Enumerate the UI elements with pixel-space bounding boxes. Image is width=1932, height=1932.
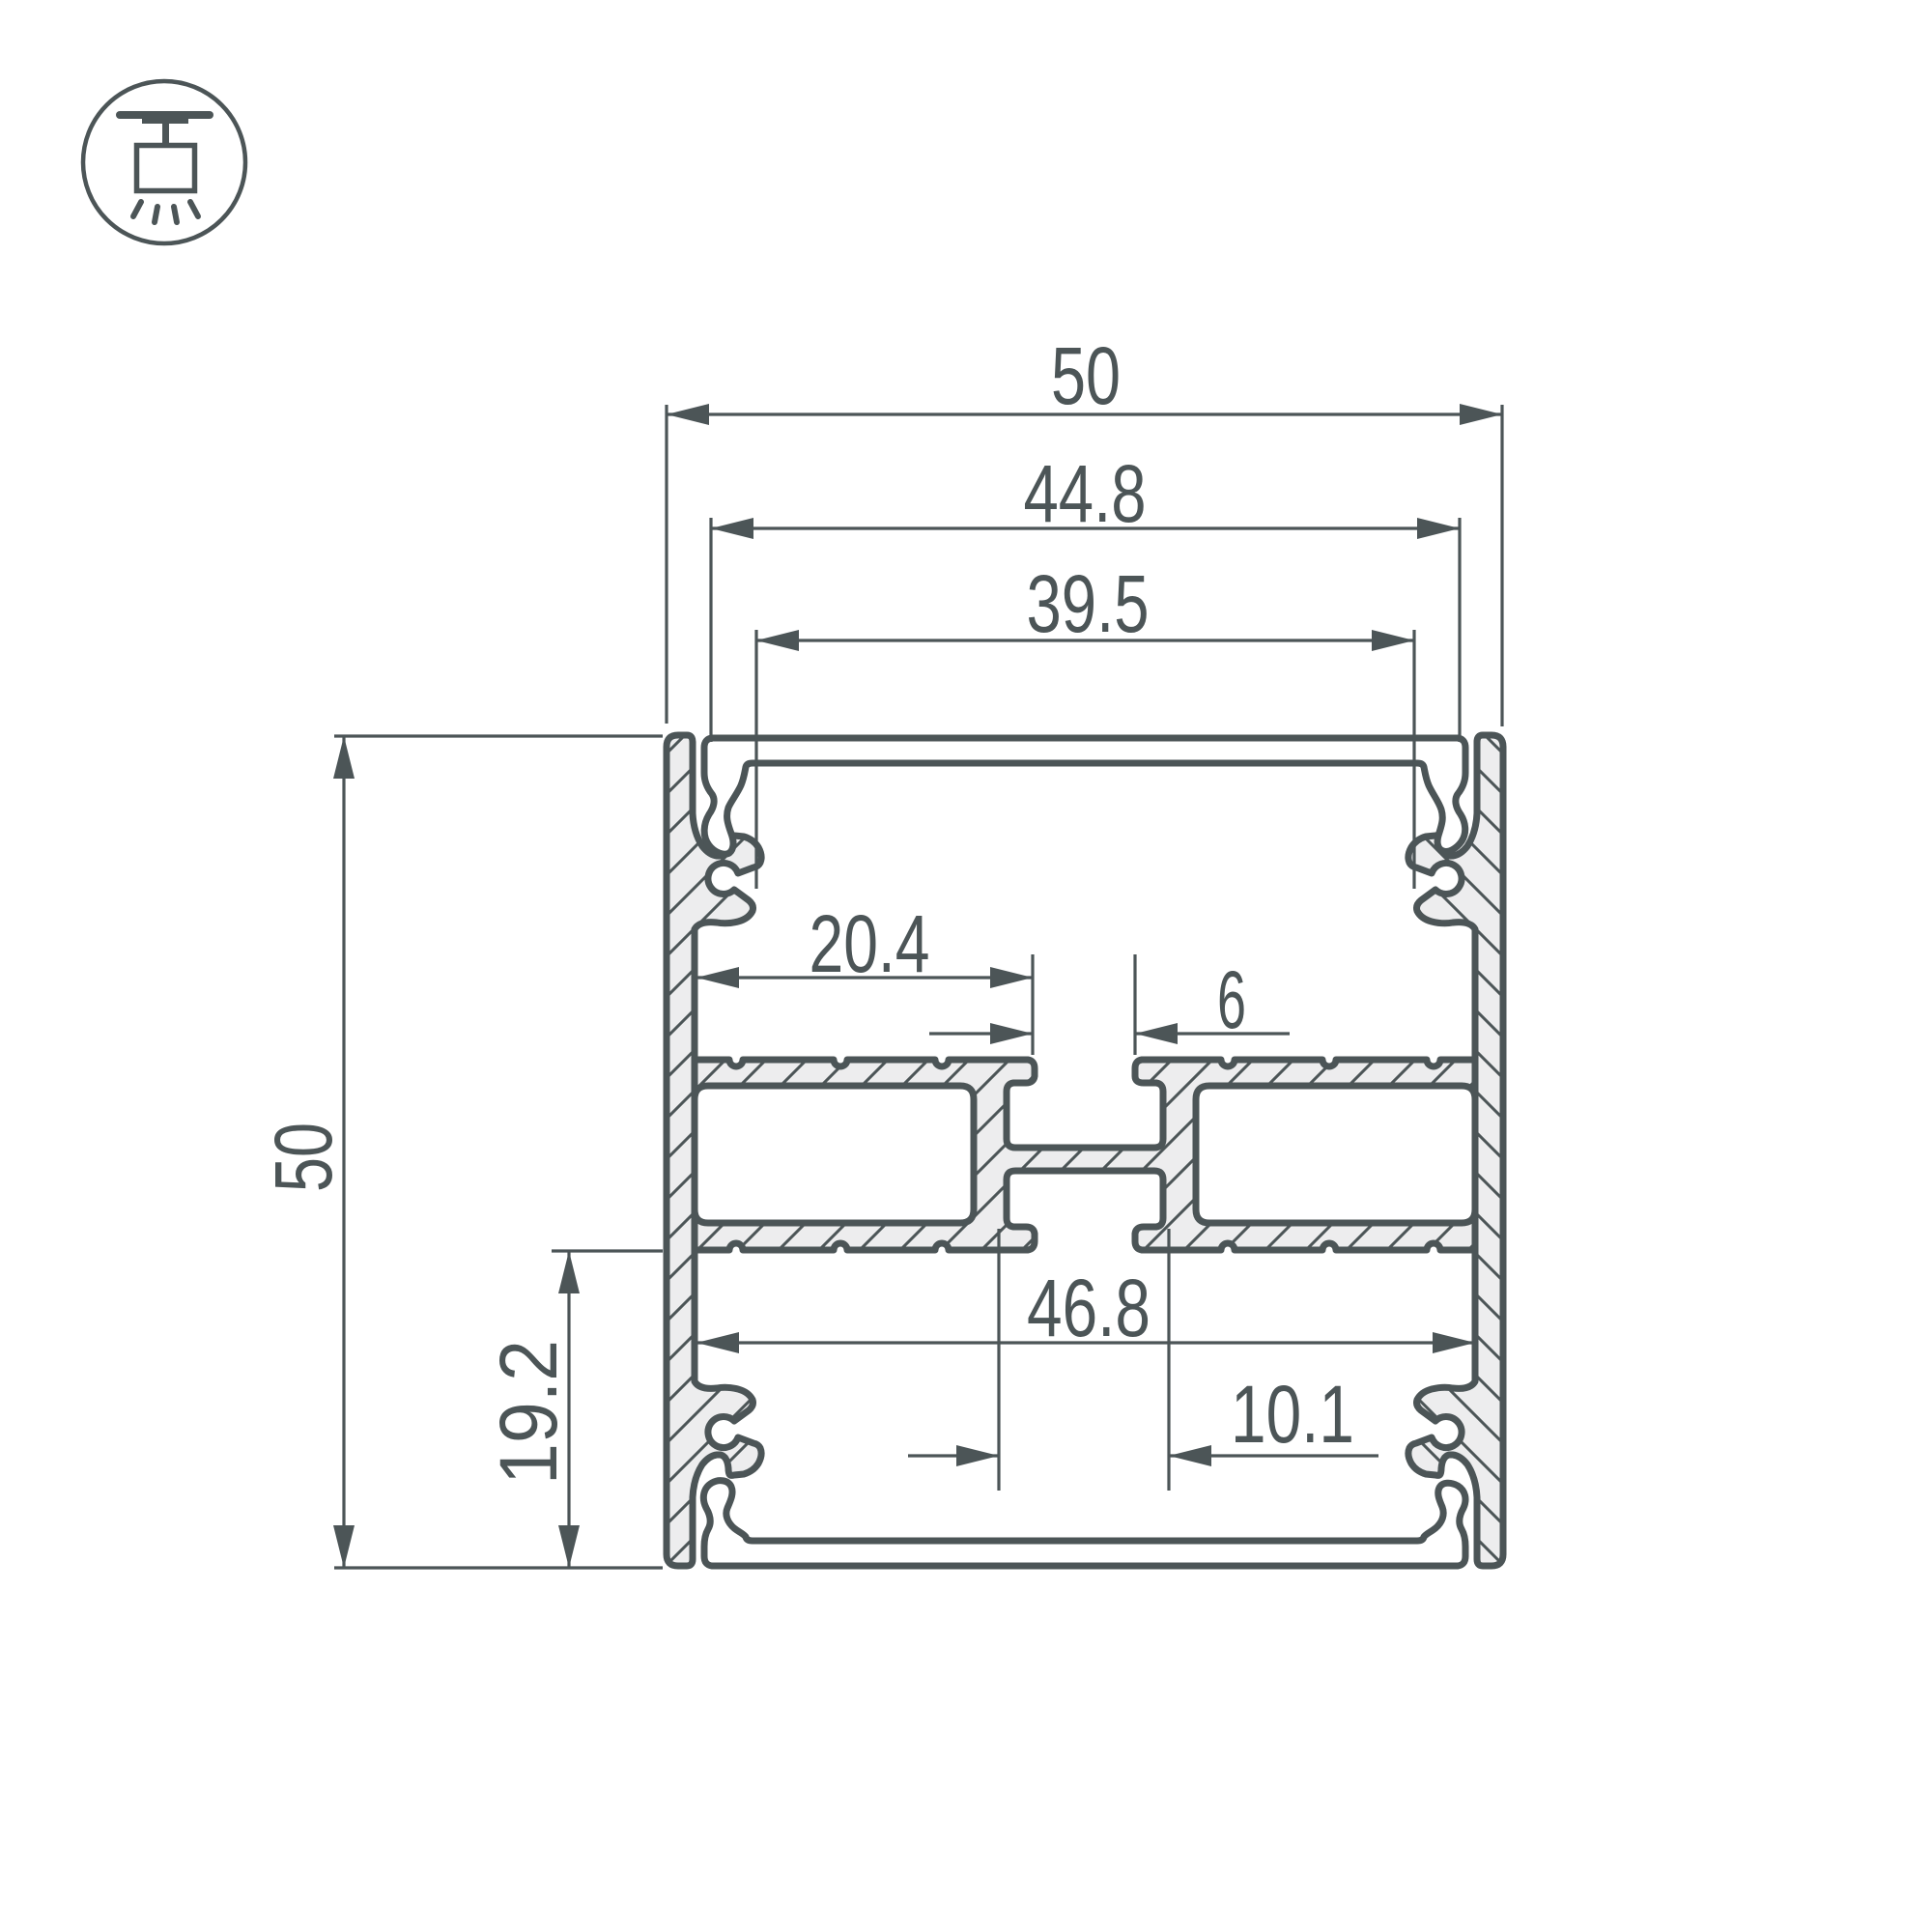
- svg-text:50: 50: [258, 1122, 349, 1192]
- svg-text:46.8: 46.8: [1027, 1263, 1151, 1353]
- svg-text:19.2: 19.2: [483, 1340, 574, 1485]
- svg-text:50: 50: [1051, 330, 1121, 421]
- svg-text:39.5: 39.5: [1027, 558, 1150, 649]
- svg-text:10.1: 10.1: [1231, 1369, 1354, 1460]
- svg-text:20.4: 20.4: [810, 898, 930, 989]
- svg-text:44.8: 44.8: [1024, 448, 1147, 539]
- svg-text:6: 6: [1217, 954, 1246, 1045]
